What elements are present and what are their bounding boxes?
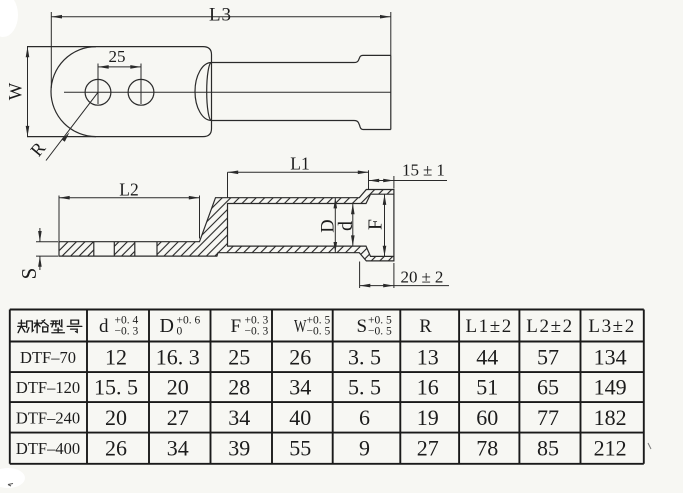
svg-text:DTF–400: DTF–400 bbox=[16, 439, 80, 458]
svg-text:19: 19 bbox=[417, 405, 439, 430]
svg-text:65: 65 bbox=[537, 375, 559, 400]
svg-text:F: F bbox=[231, 316, 242, 337]
svg-text:DTF–70: DTF–70 bbox=[20, 348, 76, 367]
svg-text:40: 40 bbox=[289, 405, 311, 430]
svg-text:134: 134 bbox=[594, 344, 627, 369]
svg-text:26: 26 bbox=[105, 436, 127, 461]
svg-text:25: 25 bbox=[228, 344, 250, 369]
svg-text:27: 27 bbox=[417, 436, 439, 461]
svg-text:20±2: 20±2 bbox=[401, 268, 444, 287]
svg-text:20: 20 bbox=[167, 375, 189, 400]
svg-text:20: 20 bbox=[105, 405, 127, 430]
svg-text:212: 212 bbox=[594, 436, 627, 461]
svg-text:S: S bbox=[17, 268, 41, 280]
svg-text:DTF–120: DTF–120 bbox=[16, 378, 80, 397]
svg-text:15. 5: 15. 5 bbox=[94, 375, 138, 400]
svg-text:34: 34 bbox=[167, 436, 189, 461]
svg-text:182: 182 bbox=[594, 405, 627, 430]
svg-text:−0. 3: −0. 3 bbox=[115, 326, 139, 338]
svg-text:d: d bbox=[335, 221, 357, 231]
svg-text:60: 60 bbox=[476, 405, 498, 430]
svg-text:S: S bbox=[357, 316, 368, 337]
svg-text:149: 149 bbox=[594, 375, 627, 400]
svg-text:15±1: 15±1 bbox=[402, 161, 445, 180]
svg-text:6: 6 bbox=[359, 405, 370, 430]
svg-text:25: 25 bbox=[109, 47, 126, 66]
svg-text:44: 44 bbox=[476, 344, 498, 369]
svg-text:−0. 5: −0. 5 bbox=[368, 326, 392, 338]
svg-text:d: d bbox=[99, 316, 109, 337]
svg-text:3. 5: 3. 5 bbox=[348, 344, 381, 369]
svg-text:26: 26 bbox=[289, 344, 311, 369]
svg-text:34: 34 bbox=[289, 375, 311, 400]
svg-text:W: W bbox=[294, 316, 307, 336]
svg-text:55: 55 bbox=[289, 436, 311, 461]
svg-text:12: 12 bbox=[105, 344, 127, 369]
svg-text:R: R bbox=[26, 138, 49, 160]
svg-text:9: 9 bbox=[359, 436, 370, 461]
svg-text:57: 57 bbox=[537, 344, 559, 369]
svg-text:L1: L1 bbox=[290, 154, 309, 174]
svg-text:78: 78 bbox=[476, 436, 498, 461]
svg-text:16. 3: 16. 3 bbox=[156, 344, 200, 369]
svg-text:W: W bbox=[7, 82, 27, 100]
svg-text:D: D bbox=[160, 315, 174, 337]
svg-text:16: 16 bbox=[417, 375, 439, 400]
svg-text:L2±2: L2±2 bbox=[526, 316, 573, 337]
svg-text:5. 5: 5. 5 bbox=[348, 375, 381, 400]
svg-text:13: 13 bbox=[417, 344, 439, 369]
svg-text:−0. 3: −0. 3 bbox=[245, 326, 269, 338]
svg-text:34: 34 bbox=[228, 405, 250, 430]
svg-text:L2: L2 bbox=[119, 180, 138, 200]
svg-text:0: 0 bbox=[177, 326, 183, 338]
svg-text:27: 27 bbox=[167, 405, 189, 430]
svg-text:39: 39 bbox=[228, 436, 250, 461]
svg-text:L3: L3 bbox=[209, 5, 232, 26]
svg-text:L1±2: L1±2 bbox=[465, 316, 512, 337]
svg-text:28: 28 bbox=[228, 375, 250, 400]
svg-text:DTF–240: DTF–240 bbox=[16, 408, 80, 427]
svg-text:R: R bbox=[419, 317, 432, 337]
svg-text:51: 51 bbox=[476, 375, 498, 400]
svg-text:−0. 5: −0. 5 bbox=[307, 326, 331, 338]
svg-text:F: F bbox=[365, 219, 387, 230]
svg-text:77: 77 bbox=[537, 405, 559, 430]
svg-text:85: 85 bbox=[537, 436, 559, 461]
svg-text:L3±2: L3±2 bbox=[588, 316, 635, 337]
